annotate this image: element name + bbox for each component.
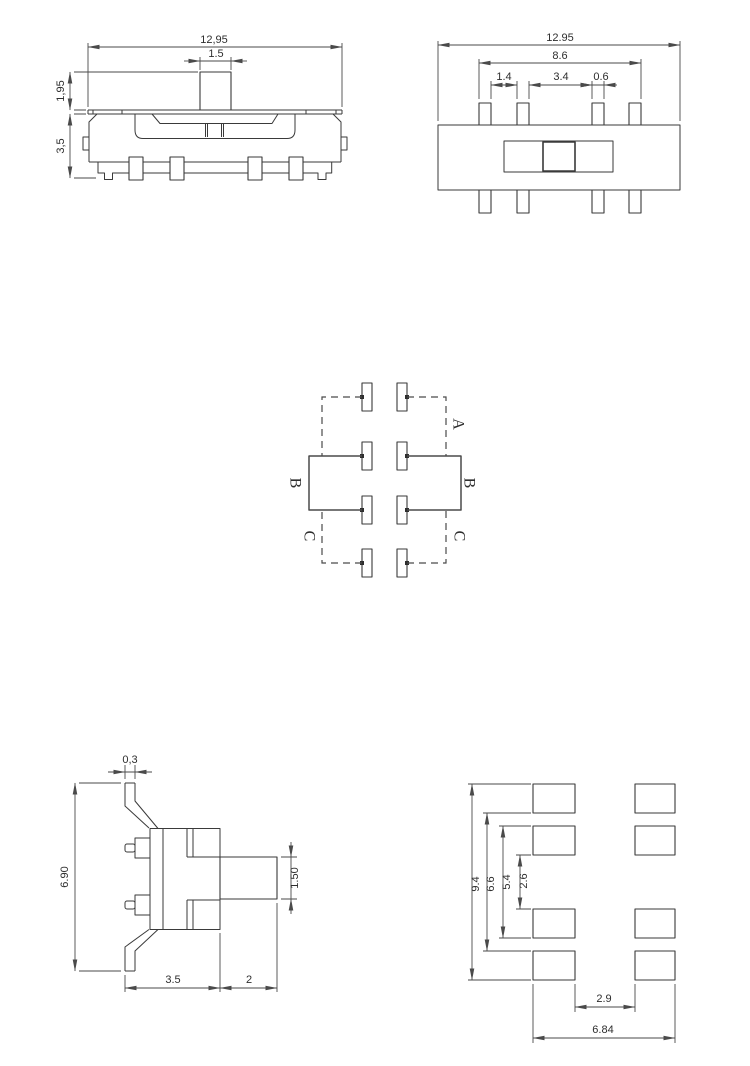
dim-pcb-overall-width: 6.84 — [592, 1024, 613, 1036]
technical-drawing-page: 12,95 1.5 1,95 3,5 — [0, 0, 750, 1066]
top-pin-up-4 — [629, 103, 641, 125]
dim-top-pin-gap-small: 1.4 — [496, 71, 511, 83]
wire-b-left — [309, 456, 362, 510]
front-pin-1 — [129, 157, 143, 180]
label-position-c-left: C — [300, 531, 317, 542]
dim-side-overall-height: 6.90 — [59, 866, 71, 887]
dim-pcb-mid-height: 6.6 — [485, 876, 497, 891]
pcb-pads — [533, 784, 675, 980]
top-pin-down-1 — [479, 190, 491, 213]
top-pin-up-3 — [592, 103, 604, 125]
ext-lines — [491, 81, 517, 99]
pcb-view: 9.4 6.6 5.4 2.6 2.9 6.84 — [468, 784, 675, 1043]
side-body — [150, 829, 220, 930]
side-contact-upper — [135, 838, 150, 858]
ext-lines — [125, 765, 135, 779]
schematic-wires — [309, 397, 461, 563]
front-plate — [88, 110, 342, 114]
pcb-pad — [635, 909, 675, 938]
dim-side-body-depth: 3.5 — [165, 974, 180, 986]
front-left-tab — [83, 137, 89, 150]
top-pin-down-4 — [629, 190, 641, 213]
dim-pcb-outer-height: 9.4 — [470, 876, 482, 891]
dim-front-knob-height: 1,95 — [55, 80, 67, 101]
side-outline — [125, 783, 277, 971]
pcb-pad — [635, 784, 675, 813]
label-position-b-right: B — [460, 478, 477, 489]
pcb-pad — [635, 826, 675, 855]
dim-pcb-center-gap: 2.6 — [518, 873, 530, 888]
top-knob — [543, 142, 575, 171]
front-pin-2 — [170, 157, 184, 180]
side-knob — [220, 857, 277, 899]
dim-top-pin-gap-large: 3.4 — [553, 71, 568, 83]
label-position-b-left: B — [286, 478, 303, 489]
front-dimensions: 12,95 1.5 1,95 3,5 — [55, 34, 342, 178]
dim-pcb-bottom-gap: 2.9 — [596, 993, 611, 1005]
top-slot — [504, 141, 613, 172]
pcb-pad — [533, 826, 575, 855]
schematic-labels: A B B C C — [286, 418, 477, 541]
side-view: 0,3 6.90 1.50 3.5 2 — [59, 754, 301, 992]
front-knob — [200, 72, 231, 110]
ext-lines — [592, 81, 604, 99]
dim-top-pin-width: 0.6 — [593, 71, 608, 83]
front-view: 12,95 1.5 1,95 3,5 — [55, 34, 347, 180]
ext-lines — [125, 903, 277, 992]
pcb-pad — [533, 951, 575, 980]
wire-c-left — [322, 510, 362, 563]
front-right-tab — [341, 137, 347, 150]
dim-pcb-inner-height: 5.4 — [501, 874, 513, 889]
top-pin-down-3 — [592, 190, 604, 213]
front-outline — [83, 72, 347, 180]
front-pin-4 — [289, 157, 303, 180]
pcb-pad — [533, 784, 575, 813]
side-contact-lower — [135, 895, 150, 915]
wire-a-right — [407, 397, 446, 456]
label-position-a: A — [449, 418, 466, 430]
ext-lines — [529, 81, 592, 99]
ext-lines — [74, 72, 198, 110]
label-position-c-right: C — [450, 531, 467, 542]
top-dimensions: 12.95 8.6 1.4 3.4 0.6 — [438, 32, 680, 121]
dim-top-pin-span: 8.6 — [552, 50, 567, 62]
dim-front-body-height: 3,5 — [55, 138, 67, 153]
dim-side-knob-length: 2 — [246, 974, 252, 986]
slide-switch-drawing: 12,95 1.5 1,95 3,5 — [0, 0, 750, 1066]
schematic-view: A B B C C — [286, 383, 477, 577]
top-body — [438, 125, 680, 190]
top-view: 12.95 8.6 1.4 3.4 0.6 — [438, 32, 680, 213]
ext-lines — [79, 783, 121, 971]
dim-side-knob-thickness: 1.50 — [289, 867, 301, 888]
dim-side-bracket-thickness: 0,3 — [122, 754, 137, 766]
top-outline — [438, 103, 680, 213]
top-pin-down-2 — [517, 190, 529, 213]
pcb-pad — [533, 909, 575, 938]
side-bracket-top — [125, 783, 158, 829]
dim-front-knob-width: 1.5 — [208, 48, 223, 60]
wire-a-left — [322, 397, 362, 456]
top-pin-up-1 — [479, 103, 491, 125]
dim-top-overall-width: 12.95 — [546, 32, 574, 44]
wire-b-right — [407, 456, 461, 510]
side-bracket-bottom — [125, 930, 158, 972]
side-contact-lower-nub — [125, 901, 135, 909]
side-contact-upper-nub — [125, 844, 135, 852]
top-pin-up-2 — [517, 103, 529, 125]
side-body-notches — [187, 829, 220, 930]
wire-c-right — [407, 510, 446, 563]
pcb-pad — [635, 951, 675, 980]
dim-front-overall-width: 12,95 — [200, 34, 228, 46]
front-pin-3 — [248, 157, 262, 180]
ext-lines — [74, 114, 96, 178]
schematic-terminals — [360, 383, 409, 577]
front-recess — [135, 114, 295, 139]
